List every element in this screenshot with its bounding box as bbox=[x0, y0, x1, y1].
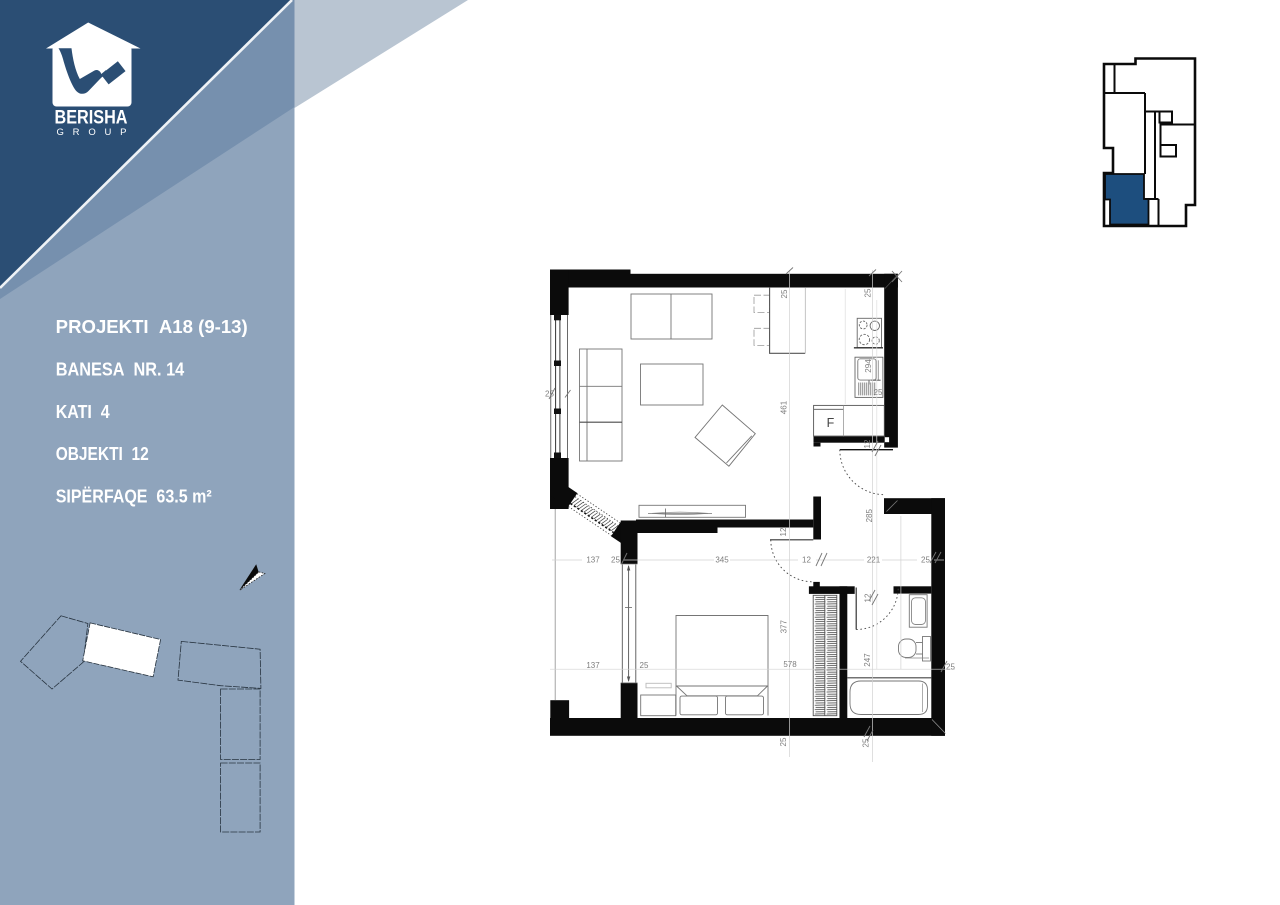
svg-text:377: 377 bbox=[780, 619, 789, 633]
svg-text:BANESA NR. 14: BANESA NR. 14 bbox=[56, 360, 185, 380]
svg-text:221: 221 bbox=[867, 556, 881, 565]
svg-text:25: 25 bbox=[640, 661, 649, 670]
svg-text:25: 25 bbox=[779, 737, 788, 746]
svg-text:SIPËRFAQE 63.5 m²: SIPËRFAQE 63.5 m² bbox=[56, 486, 212, 506]
svg-text:KATI 4: KATI 4 bbox=[56, 402, 110, 422]
svg-text:578: 578 bbox=[783, 660, 797, 669]
svg-text:BERISHA: BERISHA bbox=[55, 108, 128, 129]
svg-text:25: 25 bbox=[921, 556, 930, 565]
svg-text:461: 461 bbox=[780, 400, 789, 414]
svg-text:247: 247 bbox=[863, 653, 872, 667]
svg-text:12: 12 bbox=[802, 556, 811, 565]
svg-text:137: 137 bbox=[586, 661, 600, 670]
svg-text:25: 25 bbox=[862, 738, 871, 747]
svg-text:25: 25 bbox=[545, 390, 554, 399]
svg-text:345: 345 bbox=[715, 556, 729, 565]
svg-text:12: 12 bbox=[863, 593, 872, 602]
svg-text:PROJEKTI A18 (9-13): PROJEKTI A18 (9-13) bbox=[56, 317, 248, 337]
svg-text:25: 25 bbox=[780, 289, 789, 298]
svg-text:285: 285 bbox=[865, 508, 874, 522]
svg-text:25: 25 bbox=[864, 288, 873, 297]
svg-text:25: 25 bbox=[874, 388, 883, 397]
svg-text:25: 25 bbox=[611, 556, 620, 565]
svg-text:12: 12 bbox=[779, 527, 788, 536]
svg-text:12: 12 bbox=[863, 439, 872, 448]
svg-text:F: F bbox=[827, 416, 835, 430]
svg-text:OBJEKTI 12: OBJEKTI 12 bbox=[56, 444, 149, 464]
svg-text:25: 25 bbox=[946, 663, 955, 672]
svg-text:294: 294 bbox=[864, 359, 873, 373]
svg-text:137: 137 bbox=[586, 556, 600, 565]
